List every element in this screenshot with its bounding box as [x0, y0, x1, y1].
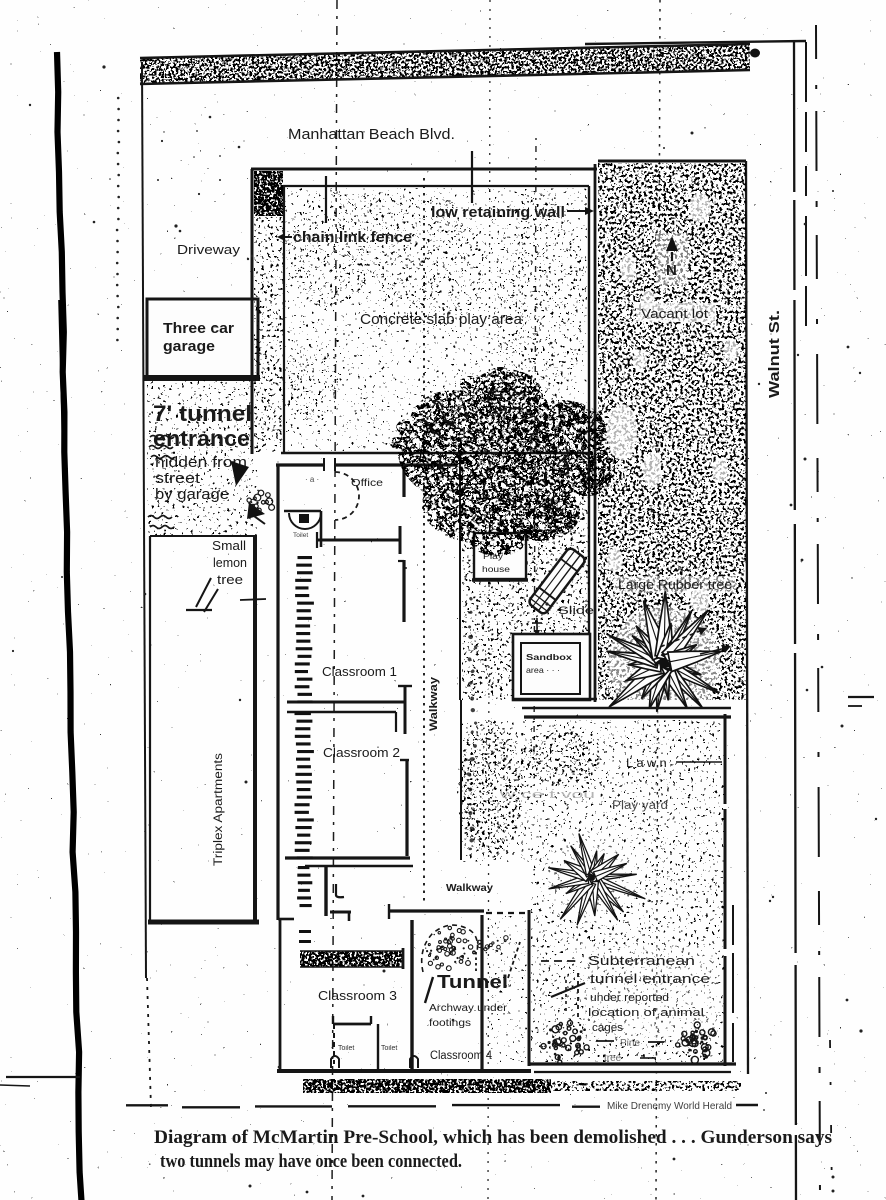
svg-text:Classroom 3: Classroom 3: [318, 989, 397, 1003]
svg-text:Triplex Apartments: Triplex Apartments: [213, 753, 225, 866]
svg-text:Play yard: Play yard: [612, 800, 668, 812]
svg-text:Slide: Slide: [558, 605, 594, 617]
svg-text:tunnel entrance: tunnel entrance: [590, 971, 710, 986]
svg-text:.: .: [148, 1154, 152, 1169]
svg-text:· a ·: · a ·: [305, 475, 319, 484]
svg-text:street: street: [155, 471, 200, 487]
svg-text:N: N: [666, 262, 677, 279]
svg-text:tree: tree: [604, 1053, 622, 1064]
svg-text:under reported: under reported: [590, 992, 669, 1004]
svg-text:Walnut St.: Walnut St.: [766, 310, 783, 398]
svg-text:tree: tree: [217, 573, 243, 587]
svg-text:Classroom 4: Classroom 4: [430, 1050, 493, 1062]
svg-text:7' tunnel: 7' tunnel: [153, 401, 252, 426]
svg-text:Walkway: Walkway: [428, 676, 440, 731]
svg-text:Vacant lot: Vacant lot: [641, 306, 708, 321]
svg-text:lemon: lemon: [213, 556, 247, 570]
svg-text:Diagram of McMartin Pre-School: Diagram of McMartin Pre-School, which ha…: [154, 1127, 832, 1148]
svg-text:Small: Small: [212, 539, 246, 553]
svg-text:footings: footings: [429, 1018, 471, 1029]
svg-text:Three car: Three car: [163, 320, 234, 337]
svg-text:Classroom 2: Classroom 2: [323, 746, 400, 760]
svg-text:Concrete slab play area: Concrete slab play area: [360, 311, 523, 328]
svg-text:Driveway: Driveway: [177, 242, 241, 257]
svg-text:Large Rubber tree: Large Rubber tree: [618, 578, 732, 592]
svg-text:Lawn: Lawn: [626, 756, 670, 770]
svg-text:Toilet: Toilet: [293, 532, 308, 539]
svg-text:cages: cages: [592, 1022, 624, 1034]
svg-text:Walkway: Walkway: [446, 882, 493, 894]
svg-text:Toilet: Toilet: [338, 1045, 354, 1052]
svg-text:Pine: Pine: [620, 1038, 640, 1049]
svg-text:Tunnel: Tunnel: [437, 972, 508, 992]
svg-text:two tunnels may have once been: two tunnels may have once been connected…: [160, 1151, 462, 1172]
svg-text:Archway under: Archway under: [429, 1003, 508, 1014]
svg-text:area · · ·: area · · ·: [526, 665, 560, 675]
svg-text:location of animal: location of animal: [588, 1007, 704, 1019]
svg-text:Sandbox: Sandbox: [526, 652, 572, 662]
svg-text:low retaining wall: low retaining wall: [431, 204, 565, 221]
svg-text:chain link fence: chain link fence: [293, 229, 412, 246]
svg-text:by garage: by garage: [155, 487, 229, 503]
svg-text:Subterranean: Subterranean: [588, 953, 695, 968]
svg-text:house: house: [482, 564, 510, 574]
svg-text:Mike Drenemy World Herald: Mike Drenemy World Herald: [607, 1100, 732, 1112]
svg-text:Manhattan Beach Blvd.: Manhattan Beach Blvd.: [288, 127, 455, 143]
svg-text:Toilet: Toilet: [381, 1045, 397, 1052]
svg-text:Classroom 1: Classroom 1: [322, 665, 397, 679]
svg-text:Office: Office: [351, 477, 383, 489]
svg-text:garage: garage: [163, 338, 215, 355]
svg-text:w ce t vou: w ce t vou: [498, 789, 595, 801]
